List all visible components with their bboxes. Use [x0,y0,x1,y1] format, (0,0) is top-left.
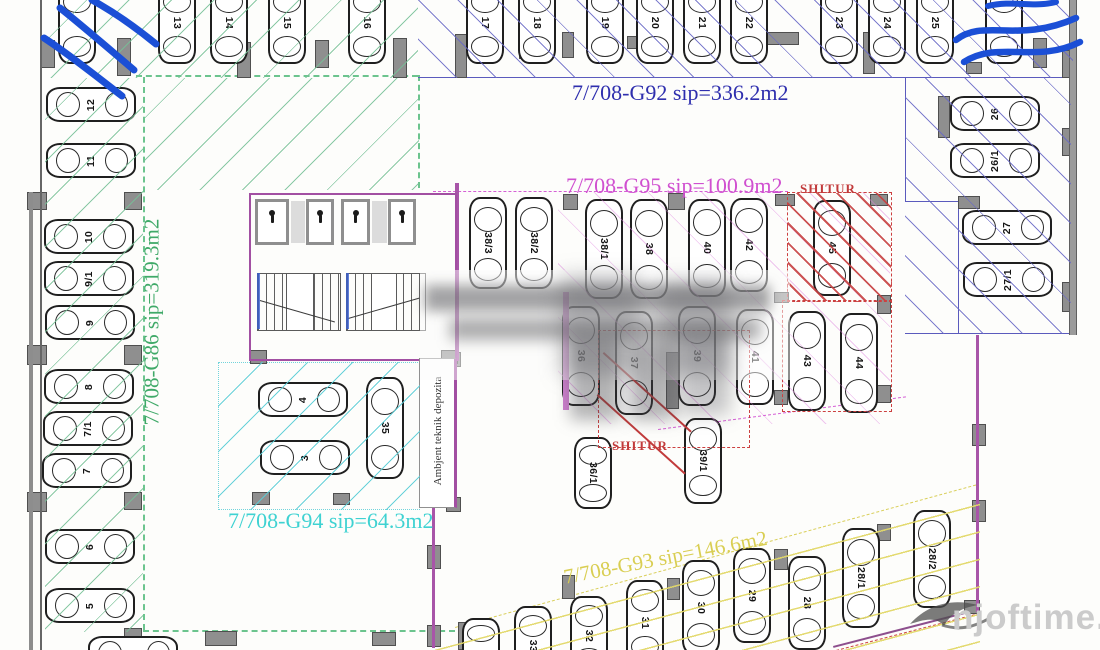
right-wall [1069,0,1077,335]
parking-car: 7 [42,453,132,488]
left-outer-wall [29,192,33,650]
parking-car: 11 [46,143,136,178]
parking-car: 13 [158,0,196,64]
car-number: 26/1 [989,149,1001,171]
g92-boundary-bottom [418,77,1073,78]
car-number: 41 [749,351,761,363]
parking-floor-plan: Ambjent teknik depozita 1 [0,0,1100,650]
parking-car: 27 [962,210,1052,245]
parking-car: 33 [514,606,552,650]
elevator-icon [399,210,405,216]
car-number: 38/3 [482,232,494,254]
car-number: 38/2 [528,232,540,254]
elevator-cell [388,199,416,245]
parking-car: 26/1 [950,143,1040,178]
car-number: 13 [171,17,183,29]
car-number: 6 [84,543,96,549]
pillar [972,500,986,522]
car-number: 27 [1001,221,1013,233]
pillar [958,196,980,209]
pillar [252,492,270,505]
label-g95: 7/708-G95 sip=100.9m2 [566,173,783,199]
right-lower-wall [976,335,979,612]
pillar [667,578,680,600]
pillar [117,38,131,76]
car-number: 14 [223,17,235,29]
car-number: 26 [989,107,1001,119]
elevator-icon [317,210,323,216]
stair-edge-marker [257,273,260,329]
g92-strip-step [905,201,959,202]
car-number: 7/1 [82,421,94,437]
car-number: 9/1 [83,271,95,287]
elevator-cell [341,199,370,245]
pillar [393,38,407,78]
car-number: 33 [527,640,539,650]
parking-car: 29 [733,548,771,643]
parking-car: 45 [813,200,851,296]
car-number: 28 [801,597,813,609]
parking-car: 28/1 [842,528,880,628]
car-number: 20 [649,17,661,29]
parking-car: 7/1 [43,411,133,446]
pillar [124,492,142,510]
elevator-shaft [291,201,305,243]
label-g86: 7/708-G86 sip=319.3m2 [140,219,165,426]
car-number: 29 [746,589,758,601]
parking-car: 26 [950,96,1040,131]
car-number: 39/1 [697,450,709,472]
parking-car: 17 [466,0,504,64]
label-g94: 7/708-G94 sip=64.3m2 [228,508,434,534]
parking-car: 40 [688,199,726,297]
parking-car: 20 [636,0,674,64]
car-number: 25 [929,17,941,29]
parking-car: 21 [683,0,721,64]
car-number: 5 [84,602,96,608]
car-number: 40 [701,242,713,254]
parking-car: 10 [44,219,134,254]
car-number: 18 [531,17,543,29]
elevator-cell [306,199,334,245]
parking-car: 19 [586,0,624,64]
pillar [870,194,888,206]
car-number: 27/1 [1002,268,1014,290]
parking-car: 38/3 [469,197,507,289]
parking-car: 31 [626,580,664,650]
parking-car: 4 [258,382,348,417]
parking-car: 32 [570,596,608,650]
pillar [774,549,788,570]
elevator-shaft [372,201,387,243]
car-number: 4 [297,396,309,402]
car-number: 21 [696,17,708,29]
car-number: 9 [84,319,96,325]
pillar [966,62,982,74]
car-number: 23 [833,17,845,29]
car-number: 35 [379,422,391,434]
car-number: 16 [361,17,373,29]
parking-car: 30 [682,560,720,650]
parking-car: 15 [268,0,306,64]
stairwell-left-landing [286,273,314,331]
pillar [205,631,237,646]
car-number: 30 [695,601,707,613]
car-number: 28/2 [926,548,938,570]
sold-box-43-44 [782,300,892,412]
parking-car: 8 [44,369,134,404]
car-number: 19 [599,17,611,29]
sold-box-37 [598,330,750,448]
g92-strip-left-lower [958,201,959,333]
left-inner-wall [40,0,42,650]
parking-car: 6 [45,529,135,564]
car-number: 8 [83,383,95,389]
parking-car [88,636,178,650]
parking-car: 18 [518,0,556,64]
parking-car: 9/1 [44,261,134,296]
sold-label: SHITUR [800,181,856,197]
car-number: 12 [85,98,97,110]
elevator-icon [269,210,275,216]
pillar [972,424,986,446]
stairwell-right-landing [371,273,397,331]
label-g92: 7/708-G92 sip=336.2m2 [572,80,789,106]
car-number: 38/1 [598,238,610,260]
parking-car: 3 [260,440,350,475]
pillar [372,632,396,646]
parking-car: 42 [730,198,768,292]
pillar [315,40,329,68]
parking-car: 38 [630,199,668,299]
parking-car [58,0,96,64]
parking-car: 22 [730,0,768,64]
g86-boundary-top [136,75,418,77]
parking-car: 24 [868,0,906,64]
parking-car: 28 [788,556,826,650]
parking-car: 5 [45,588,135,623]
parking-car: 23 [820,0,858,64]
car-number: 10 [83,230,95,242]
parking-car: 12 [46,87,136,122]
car-number: 32 [583,630,595,642]
car-number: 22 [743,17,755,29]
pink-wall-segment [563,292,569,410]
parking-car: 9 [45,305,135,340]
parking-car: 38/1 [585,199,623,299]
pillar [333,493,350,505]
sold-label: SHITUR [612,438,668,454]
stair-edge-marker [346,273,349,329]
parking-car: 35 [366,377,404,479]
g86-boundary-right-upper [418,75,420,188]
car-number: 7 [81,467,93,473]
elevator-icon [353,210,359,216]
g86-boundary-bottom [143,630,455,632]
elevator-cell [255,199,289,245]
parking-car: 14 [210,0,248,64]
car-number: 38 [643,243,655,255]
parking-car: 28/2 [913,510,951,608]
g92-strip-bottom [905,333,1072,334]
car-number: 3 [299,454,311,460]
parking-car: 16 [348,0,386,64]
parking-car: 38/2 [515,197,553,289]
parking-car: 27/1 [963,262,1053,297]
car-number: 17 [479,17,491,29]
pillar [562,32,574,58]
technical-room-label: Ambjent teknik depozita [432,377,444,486]
g92-strip-left-upper [905,78,906,202]
car-number: 31 [639,616,651,628]
parking-car: 25 [916,0,954,64]
car-number: 36 [575,350,587,362]
car-number: 24 [881,17,893,29]
watermark: njoftime.al [952,598,1100,638]
parking-car [985,0,1023,64]
area-hatch-g86-box [143,78,419,190]
car-number: 28/1 [855,567,867,589]
parking-car [462,618,500,650]
pillar [938,96,950,138]
car-number: 45 [826,242,838,254]
car-number: 11 [85,155,97,167]
pillar [1033,38,1047,68]
car-number: 36/1 [587,462,599,484]
pillar [124,192,142,210]
car-number: 15 [281,17,293,29]
car-number: 42 [743,239,755,251]
pillar [40,40,55,68]
